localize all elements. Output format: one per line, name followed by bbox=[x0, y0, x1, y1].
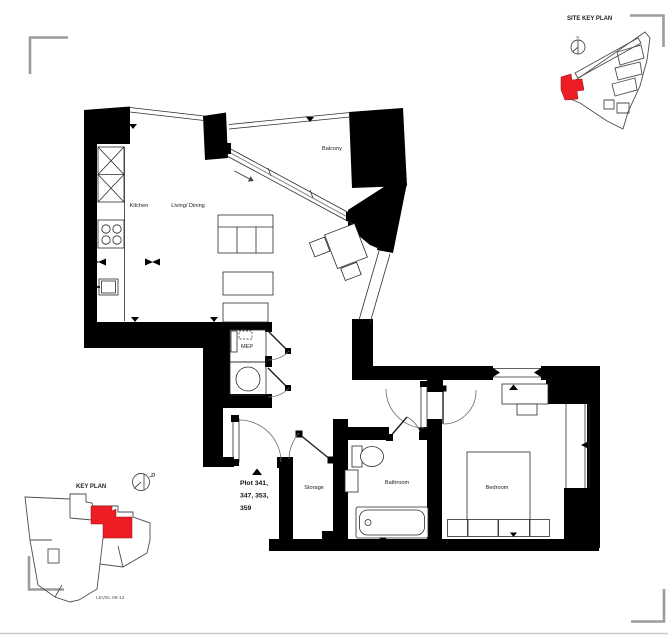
mep-closet: MEP bbox=[230, 330, 291, 362]
plot-label: Plot 341, 347, 353, 359 bbox=[240, 469, 268, 513]
glass-line bbox=[228, 152, 352, 220]
key-plan-outline bbox=[25, 494, 150, 602]
bathroom-label: Bathroom bbox=[385, 480, 410, 486]
plot-label-line1: Plot 341, bbox=[240, 480, 268, 487]
section-marker-mid bbox=[145, 259, 160, 266]
north-compass-icon: N bbox=[571, 36, 585, 55]
storage: Storage bbox=[289, 431, 335, 492]
sofa bbox=[218, 215, 273, 253]
entrance-door bbox=[231, 415, 281, 466]
main-floor-plan: Kitchen L bbox=[84, 107, 600, 552]
plot-label-line2: 347, 353, bbox=[240, 493, 268, 500]
level-label: LEVEL 09-12 bbox=[96, 595, 125, 601]
storage-label: Storage bbox=[304, 485, 324, 491]
site-key-plan: SITE KEY PLAN N bbox=[561, 16, 650, 129]
balcony: Balcony bbox=[322, 146, 342, 152]
key-plan-highlighted-plot bbox=[91, 506, 132, 538]
hall-door bbox=[386, 381, 428, 428]
kitchen: Kitchen bbox=[92, 147, 148, 321]
corner-mark-top-left bbox=[30, 38, 68, 75]
corner-mark-bottom-right bbox=[631, 589, 664, 622]
kitchen-hob bbox=[98, 220, 124, 248]
corner-mark-top-right bbox=[630, 16, 664, 48]
kitchen-top-window bbox=[130, 108, 204, 121]
living-dining: Living/ Dining bbox=[91, 203, 372, 322]
plot-label-line3: 359 bbox=[240, 505, 252, 512]
wardrobe bbox=[502, 384, 548, 415]
bathtub bbox=[356, 507, 428, 542]
kitchen-label: Kitchen bbox=[130, 203, 149, 209]
living-dining-label: Living/ Dining bbox=[171, 203, 205, 209]
entrance-arrow-icon bbox=[252, 469, 262, 476]
bathroom: Bathroom bbox=[339, 446, 428, 542]
kitchen-tall-units bbox=[98, 147, 124, 202]
hall-top-window bbox=[493, 368, 541, 377]
section-marker-left bbox=[91, 259, 106, 266]
bedroom-right-window bbox=[566, 404, 589, 488]
mep-label: MEP bbox=[241, 344, 253, 350]
site-key-plan-title: SITE KEY PLAN bbox=[567, 16, 612, 22]
floor-plan-sheet: Kitchen L bbox=[0, 0, 668, 635]
slide-direction-arrow bbox=[233, 168, 255, 184]
washer-closet bbox=[230, 362, 291, 397]
bathroom-door bbox=[386, 417, 420, 441]
living-right-window bbox=[359, 251, 390, 323]
bedroom-label: Bedroom bbox=[486, 485, 509, 491]
bedroom-door bbox=[440, 386, 477, 425]
storage-door bbox=[299, 434, 331, 460]
key-plan-compass-icon bbox=[133, 474, 155, 491]
console-table bbox=[223, 303, 268, 322]
site-highlighted-building bbox=[561, 74, 584, 100]
toilet bbox=[352, 446, 384, 467]
balcony-top-edge bbox=[229, 113, 350, 130]
bedroom: Bedroom bbox=[448, 384, 550, 537]
key-plan: KEY PLAN LEVEL 09-12 bbox=[25, 474, 155, 603]
key-plan-title: KEY PLAN bbox=[76, 484, 106, 490]
coffee-table bbox=[223, 272, 273, 295]
north-label: N bbox=[577, 36, 580, 40]
washing-machine bbox=[236, 367, 260, 391]
balcony-label: Balcony bbox=[322, 146, 342, 152]
balcony-sliding-door bbox=[221, 143, 355, 224]
